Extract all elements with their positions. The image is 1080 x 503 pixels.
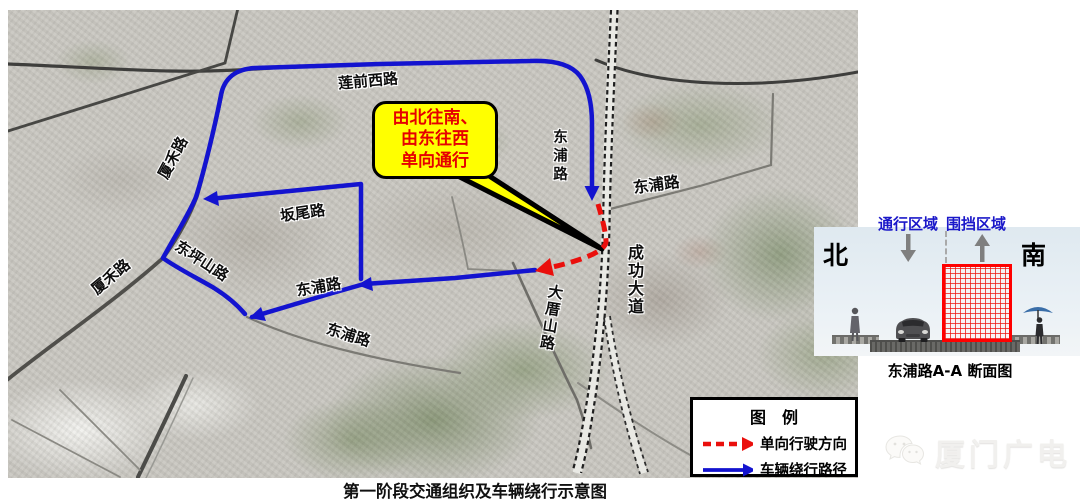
- up-arrow-icon: [974, 234, 990, 264]
- legend-item-label: 车辆绕行路径: [760, 459, 847, 480]
- car-icon: [890, 315, 936, 343]
- watermark-text: 厦门广电: [935, 430, 1071, 474]
- red-dashed-arrow-icon: [701, 436, 753, 452]
- cross-section-panel: 北 南: [814, 227, 1080, 356]
- detour-route-blue: [163, 61, 592, 317]
- oneway-arrowhead: [535, 258, 554, 276]
- watermark: 厦门广电: [884, 430, 1071, 474]
- zone-label-open: 通行区域: [878, 213, 938, 234]
- north-label: 北: [823, 236, 848, 272]
- cross-section-caption: 东浦路A-A 断面图: [860, 360, 1040, 381]
- callout-line: 由东往西: [401, 129, 469, 151]
- callout-line: 单向通行: [401, 151, 469, 173]
- oneway-notice-callout: 由北往南、 由东往西 单向通行: [372, 101, 498, 179]
- callout-pointer: [446, 170, 602, 249]
- barrier-mesh: [942, 264, 1012, 342]
- road-label-chenggong-ave: 成功大道: [622, 244, 646, 316]
- blue-solid-arrow-icon: [701, 462, 753, 478]
- traffic-detour-map-page: 莲前西路 厦禾路 厦禾路 坂尾路 东坪山路 东浦路 东浦路 东浦路 东浦路 成功…: [0, 0, 1080, 503]
- figure-caption: 第一阶段交通组织及车辆绕行示意图: [300, 478, 650, 502]
- pedestrian-with-umbrella: [1020, 300, 1056, 346]
- wechat-logo-icon: [884, 433, 926, 471]
- road-label-dongpu-north: 东浦路: [549, 129, 570, 185]
- zone-label-closed: 围挡区域: [946, 213, 1006, 234]
- legend-item-oneway: 单向行驶方向: [701, 433, 847, 454]
- legend-title: 图 例: [701, 404, 847, 428]
- zone-divider-line: [945, 231, 947, 263]
- pedestrian-left: [847, 307, 863, 343]
- down-arrow-icon: [900, 234, 916, 264]
- legend-item-label: 单向行驶方向: [760, 433, 847, 454]
- south-label: 南: [1021, 236, 1046, 272]
- legend-item-detour: 车辆绕行路径: [701, 459, 847, 480]
- legend-box: 图 例 单向行驶方向 车辆绕行路径: [690, 397, 858, 477]
- callout-line: 由北往南、: [393, 108, 478, 130]
